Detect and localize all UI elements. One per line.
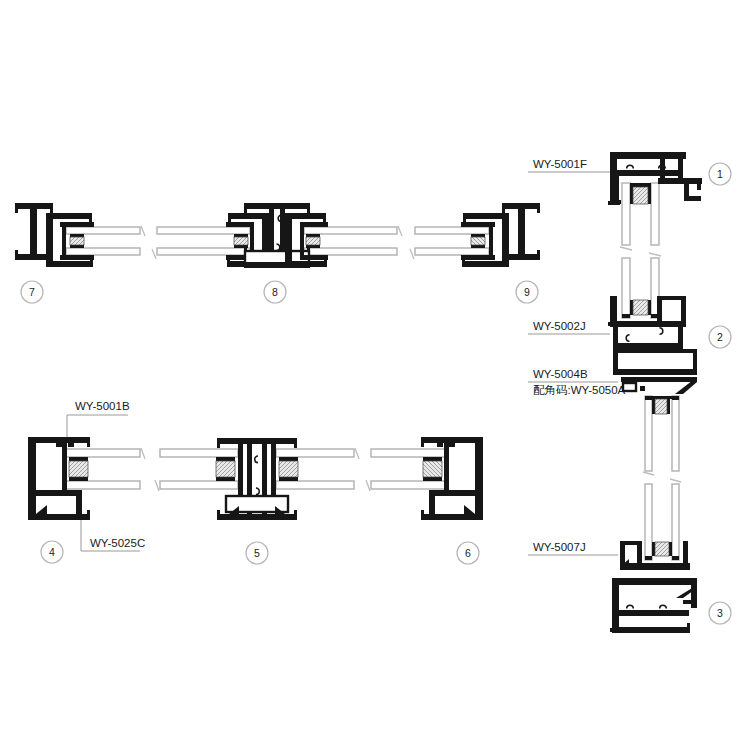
balloon-2: 2 [709, 326, 731, 348]
part-label-wy5050a: 配角码:WY-5050A [533, 384, 626, 396]
section-4-profile [28, 437, 140, 520]
leader-wy5001b [67, 415, 128, 437]
glazing-spacer [655, 399, 667, 414]
glazing-spacer [633, 300, 648, 315]
glazing-spacer [234, 237, 248, 245]
part-label-wy5007j: WY-5007J [533, 541, 586, 553]
svg-text:6: 6 [465, 547, 471, 559]
svg-text:5: 5 [254, 547, 260, 559]
svg-text:7: 7 [29, 286, 35, 298]
section-7-profile [15, 203, 140, 267]
svg-text:4: 4 [49, 546, 55, 558]
profile-sections-diagram: WY-5001F WY-5002J WY-5004B 配角码:WY-5050A … [0, 0, 750, 750]
balloon-8: 8 [264, 281, 286, 303]
glazing-spacer [279, 461, 298, 477]
part-label-wy5002j: WY-5002J [533, 320, 586, 332]
section-8-profile [226, 203, 328, 268]
glazing-spacer [70, 237, 84, 245]
glass-run-vertical-lower [643, 396, 681, 560]
balloon-7: 7 [21, 281, 43, 303]
balloon-1: 1 [709, 163, 731, 185]
svg-text:9: 9 [524, 286, 530, 298]
glazing-spacer [216, 461, 235, 477]
glass-run-top-left [141, 226, 250, 259]
balloon-5: 5 [246, 542, 268, 564]
svg-text:2: 2 [717, 331, 723, 343]
svg-text:1: 1 [717, 168, 723, 180]
part-label-wy5001b: WY-5001B [75, 400, 130, 412]
balloon-4: 4 [41, 541, 63, 563]
balloon-9: 9 [516, 281, 538, 303]
part-label-wy5001f: WY-5001F [533, 158, 587, 170]
section-3-profile [610, 541, 697, 633]
section-6-profile [371, 437, 483, 520]
svg-text:3: 3 [717, 607, 723, 619]
section-9-profile [415, 203, 540, 267]
glazing-spacer [633, 187, 648, 204]
glazing-spacer [306, 237, 320, 245]
balloon-3: 3 [709, 602, 731, 624]
balloon-6: 6 [457, 542, 479, 564]
glass-run-top-right [304, 226, 414, 259]
glazing-spacer [655, 542, 669, 556]
part-label-wy5004b: WY-5004B [533, 368, 588, 380]
part-label-wy5025c: WY-5025C [90, 537, 145, 549]
drawing-canvas: WY-5001F WY-5002J WY-5004B 配角码:WY-5050A … [0, 0, 750, 750]
glazing-spacer [69, 461, 88, 477]
svg-text:8: 8 [272, 286, 278, 298]
